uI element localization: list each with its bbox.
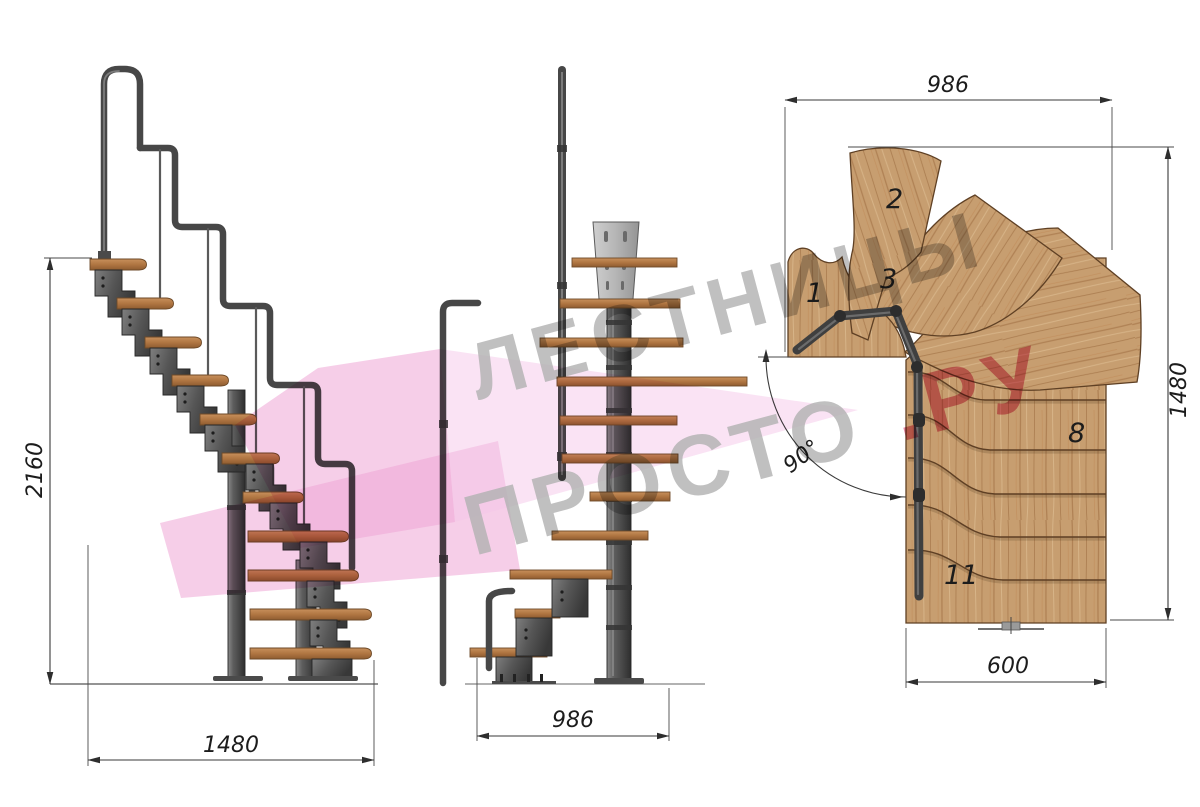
step-label-8: 8 (1068, 418, 1085, 449)
plan-height-label: 1480 (1167, 362, 1192, 418)
front-modules (492, 579, 588, 684)
staircase-drawing: 2160 1480 (0, 0, 1200, 807)
plan-width-label: 986 (927, 73, 969, 98)
step-label-2: 2 (886, 184, 903, 215)
drawing-canvas: 2160 1480 (0, 0, 1200, 807)
side-column-base-plate (213, 676, 263, 681)
front-column-base (594, 678, 644, 684)
side-height-label: 2160 (23, 442, 48, 498)
step-label-11: 11 (944, 560, 978, 591)
side-height-dimension: 2160 (23, 258, 92, 684)
front-width-label: 986 (552, 708, 594, 733)
plan-lower-width-dimension: 600 (906, 628, 1106, 688)
side-width-label: 1480 (203, 733, 259, 758)
plan-lower-width-label: 600 (987, 654, 1029, 679)
